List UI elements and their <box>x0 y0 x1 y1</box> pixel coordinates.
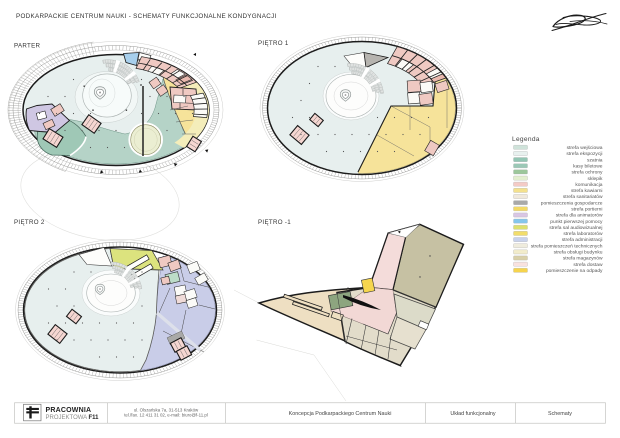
svg-text:A: A <box>347 286 350 291</box>
svg-text:strefa dostaw: strefa dostaw <box>573 262 603 268</box>
svg-text:strefa pomieszczeń technicznyc: strefa pomieszczeń technicznych <box>531 243 603 249</box>
svg-text:Koncepcja Podkarpackiego Centr: Koncepcja Podkarpackiego Centrum Nauki <box>289 411 392 417</box>
svg-text:PRACOWNIA: PRACOWNIA <box>46 407 92 414</box>
svg-text:PODKARPACKIE CENTRUM NAUKI -: PODKARPACKIE CENTRUM NAUKI - SCHEMATY FU… <box>16 13 277 20</box>
svg-text:sklepik: sklepik <box>588 176 604 182</box>
svg-text:punkt pierwszej pomocy: punkt pierwszej pomocy <box>550 219 603 225</box>
svg-text:kasy biletowe: kasy biletowe <box>573 163 603 169</box>
svg-text:komunikacja: komunikacja <box>575 182 602 188</box>
svg-text:strefa laboratorów: strefa laboratorów <box>563 231 603 237</box>
svg-text:szatnia: szatnia <box>587 157 603 163</box>
svg-text:PIĘTRO -1: PIĘTRO -1 <box>258 219 291 226</box>
svg-text:Schematy: Schematy <box>548 411 572 417</box>
svg-text:Legenda: Legenda <box>512 136 540 143</box>
svg-text:tel./fax. 12 411 31 02, e-mail: tel./fax. 12 411 31 02, e-mail: biuro@f-… <box>124 413 208 418</box>
svg-text:strefa sal audiowizualnej: strefa sal audiowizualnej <box>549 225 602 231</box>
svg-text:strefa obsługi budynku: strefa obsługi budynku <box>554 250 603 256</box>
svg-text:strefa ochrony: strefa ochrony <box>572 170 604 176</box>
svg-text:PIĘTRO 1: PIĘTRO 1 <box>258 40 289 47</box>
svg-text:strefa magazynów: strefa magazynów <box>563 256 603 262</box>
svg-text:PIĘTRO 2: PIĘTRO 2 <box>14 219 45 226</box>
svg-text:PROJEKTOWA F11: PROJEKTOWA F11 <box>46 415 100 421</box>
svg-text:Układ funkcjonalny: Układ funkcjonalny <box>450 411 496 417</box>
svg-text:strefa kawiarni: strefa kawiarni <box>571 188 603 194</box>
svg-text:strefa wejściowa: strefa wejściowa <box>567 145 603 151</box>
svg-text:strefa dla animatorów: strefa dla animatorów <box>556 213 603 219</box>
svg-text:strefa sanitariatów: strefa sanitariatów <box>563 194 603 200</box>
svg-text:strefa ekspozycji: strefa ekspozycji <box>566 151 602 157</box>
svg-text:strefa administracji: strefa administracji <box>562 237 603 243</box>
svg-text:pomieszczenie na odpady: pomieszczenie na odpady <box>546 268 603 274</box>
svg-text:PARTER: PARTER <box>14 43 41 50</box>
svg-text:strefa portierni: strefa portierni <box>571 207 602 213</box>
svg-text:pomieszczenia gospodarcze: pomieszczenia gospodarcze <box>541 200 603 206</box>
